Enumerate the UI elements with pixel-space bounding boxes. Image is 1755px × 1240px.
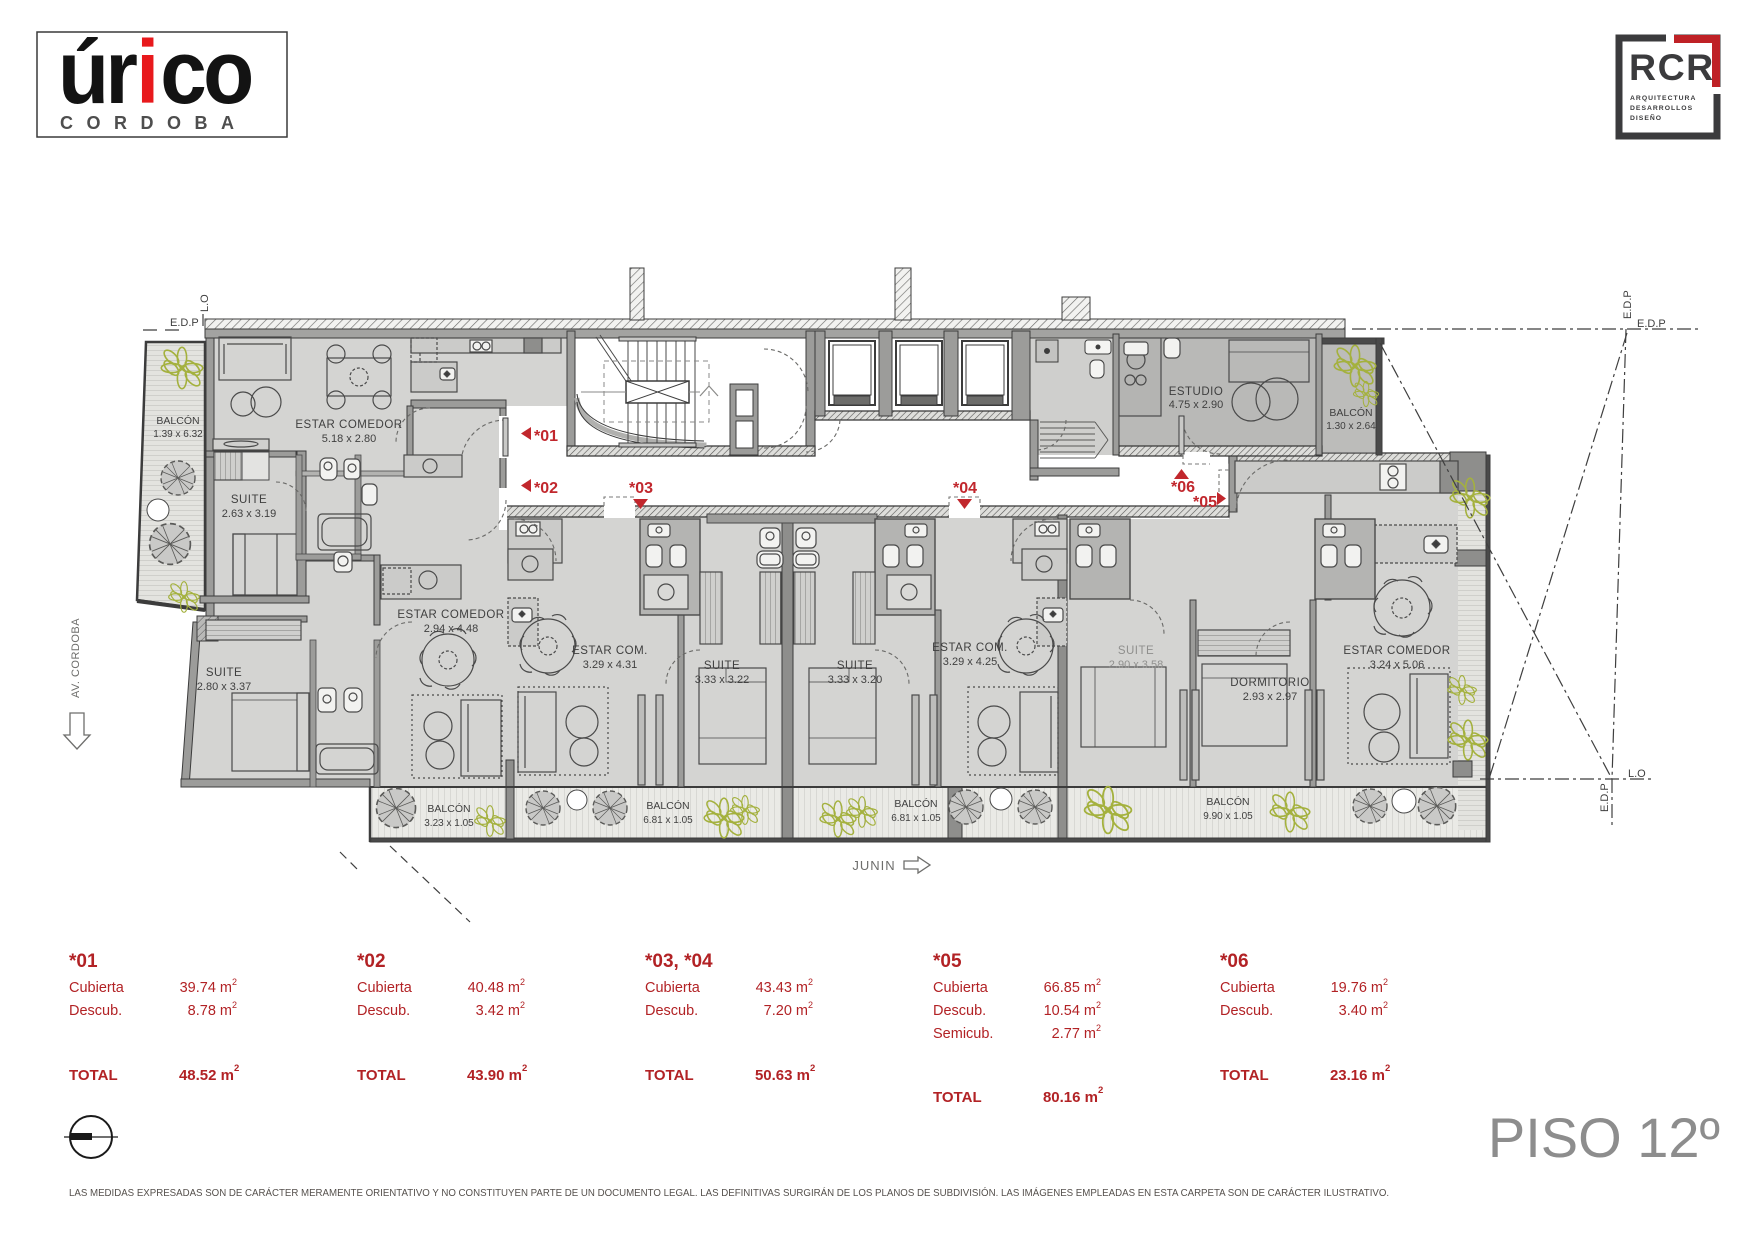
svg-text:2.93 x 2.97: 2.93 x 2.97 xyxy=(1243,691,1297,703)
svg-text:BALCÓN: BALCÓN xyxy=(894,797,937,810)
svg-text:Cubierta: Cubierta xyxy=(1220,980,1276,996)
svg-text:*05: *05 xyxy=(1193,494,1217,511)
svg-text:2.90 x 3.58: 2.90 x 3.58 xyxy=(1109,659,1163,671)
svg-text:TOTAL: TOTAL xyxy=(933,1089,982,1106)
svg-text:2: 2 xyxy=(1098,1085,1103,1096)
svg-text:2: 2 xyxy=(520,977,525,987)
svg-text:43.90 m: 43.90 m xyxy=(467,1067,522,1084)
svg-text:1.30 x 2.64: 1.30 x 2.64 xyxy=(1326,421,1376,432)
svg-text:DORMITORIO: DORMITORIO xyxy=(1230,677,1310,689)
svg-text:Descub.: Descub. xyxy=(1220,1003,1273,1019)
svg-text:8.78 m: 8.78 m xyxy=(188,1003,232,1019)
svg-text:2.77 m: 2.77 m xyxy=(1052,1026,1096,1042)
svg-text:JUNIN: JUNIN xyxy=(852,858,895,873)
svg-text:3.42 m: 3.42 m xyxy=(476,1003,520,1019)
svg-text:23.16 m: 23.16 m xyxy=(1330,1067,1385,1084)
svg-text:ESTAR COMEDOR: ESTAR COMEDOR xyxy=(397,609,504,621)
svg-text:6.81 x 1.05: 6.81 x 1.05 xyxy=(643,815,693,826)
svg-text:3.23 x 1.05: 3.23 x 1.05 xyxy=(424,818,474,829)
svg-text:*06: *06 xyxy=(1171,479,1195,496)
svg-text:*06: *06 xyxy=(1220,951,1249,972)
svg-text:2: 2 xyxy=(1383,1000,1388,1010)
svg-text:Cubierta: Cubierta xyxy=(933,980,989,996)
svg-text:2: 2 xyxy=(232,1000,237,1010)
svg-text:Cubierta: Cubierta xyxy=(69,980,125,996)
svg-text:*01: *01 xyxy=(69,951,98,972)
svg-text:5.18 x 2.80: 5.18 x 2.80 xyxy=(322,433,376,445)
svg-text:2: 2 xyxy=(1385,1063,1390,1074)
svg-text:1.39 x 6.32: 1.39 x 6.32 xyxy=(153,429,203,440)
svg-text:TOTAL: TOTAL xyxy=(69,1067,118,1084)
svg-text:SUITE: SUITE xyxy=(704,660,740,672)
svg-text:SUITE: SUITE xyxy=(231,494,267,506)
svg-text:43.43 m: 43.43 m xyxy=(756,980,808,996)
svg-text:i: i xyxy=(136,22,159,122)
svg-text:Descub.: Descub. xyxy=(69,1003,122,1019)
svg-text:E.D.P: E.D.P xyxy=(170,317,199,329)
svg-text:ESTAR COM.: ESTAR COM. xyxy=(932,642,1008,654)
svg-text:BALCÓN: BALCÓN xyxy=(646,799,689,812)
svg-text:TOTAL: TOTAL xyxy=(357,1067,406,1084)
svg-text:BALCÓN: BALCÓN xyxy=(1329,406,1372,419)
svg-text:ARQUITECTURA: ARQUITECTURA xyxy=(1630,95,1696,102)
svg-text:19.76 m: 19.76 m xyxy=(1331,980,1383,996)
svg-text:66.85 m: 66.85 m xyxy=(1044,980,1096,996)
svg-text:2: 2 xyxy=(1383,977,1388,987)
svg-text:9.90 x 1.05: 9.90 x 1.05 xyxy=(1203,811,1253,822)
svg-text:LAS MEDIDAS EXPRESADAS SON DE: LAS MEDIDAS EXPRESADAS SON DE CARÁCTER M… xyxy=(69,1188,1389,1199)
svg-text:BALCÓN: BALCÓN xyxy=(1206,795,1249,808)
svg-text:SUITE: SUITE xyxy=(837,660,873,672)
svg-text:E.D.P: E.D.P xyxy=(1637,318,1666,330)
svg-text:2: 2 xyxy=(808,977,813,987)
svg-text:L.O: L.O xyxy=(1628,768,1646,780)
svg-text:CORDOBA: CORDOBA xyxy=(60,113,248,133)
svg-text:39.74 m: 39.74 m xyxy=(180,980,232,996)
svg-text:DESARROLLOS: DESARROLLOS xyxy=(1630,105,1693,112)
svg-text:*03, *04: *03, *04 xyxy=(645,951,713,972)
svg-text:DISEÑO: DISEÑO xyxy=(1630,113,1662,122)
svg-text:TOTAL: TOTAL xyxy=(1220,1067,1269,1084)
svg-text:Cubierta: Cubierta xyxy=(357,980,413,996)
svg-text:2: 2 xyxy=(232,977,237,987)
svg-text:4.75 x 2.90: 4.75 x 2.90 xyxy=(1169,399,1223,411)
svg-text:Descub.: Descub. xyxy=(645,1003,698,1019)
svg-text:3.24 x 5.06: 3.24 x 5.06 xyxy=(1370,659,1424,671)
svg-text:2.80 x 3.37: 2.80 x 3.37 xyxy=(197,681,251,693)
svg-text:ESTAR COM.: ESTAR COM. xyxy=(572,645,648,657)
svg-text:L.O: L.O xyxy=(199,294,211,312)
svg-text:PISO 12º: PISO 12º xyxy=(1488,1106,1720,1169)
svg-text:*04: *04 xyxy=(953,480,977,497)
svg-text:AV. CORDOBA: AV. CORDOBA xyxy=(70,618,82,698)
svg-text:*05: *05 xyxy=(933,951,962,972)
svg-text:Cubierta: Cubierta xyxy=(645,980,701,996)
svg-text:SUITE: SUITE xyxy=(1118,645,1154,657)
svg-text:SUITE: SUITE xyxy=(206,667,242,679)
svg-text:2: 2 xyxy=(1096,977,1101,987)
svg-text:2: 2 xyxy=(1096,1023,1101,1033)
svg-text:TOTAL: TOTAL xyxy=(645,1067,694,1084)
svg-text:Semicub.: Semicub. xyxy=(933,1026,993,1042)
svg-text:2.63 x 3.19: 2.63 x 3.19 xyxy=(222,508,276,520)
svg-text:E.D.P: E.D.P xyxy=(1599,783,1611,812)
svg-text:40.48 m: 40.48 m xyxy=(468,980,520,996)
svg-text:úr: úr xyxy=(58,22,137,122)
svg-text:48.52 m: 48.52 m xyxy=(179,1067,234,1084)
svg-text:3.40 m: 3.40 m xyxy=(1339,1003,1383,1019)
svg-text:Descub.: Descub. xyxy=(933,1003,986,1019)
svg-text:ESTAR COMEDOR: ESTAR COMEDOR xyxy=(295,419,402,431)
svg-text:2: 2 xyxy=(1096,1000,1101,1010)
svg-text:3.29 x 4.31: 3.29 x 4.31 xyxy=(583,659,637,671)
svg-text:E.D.P: E.D.P xyxy=(1622,290,1634,319)
svg-text:10.54 m: 10.54 m xyxy=(1044,1003,1096,1019)
svg-text:2: 2 xyxy=(522,1063,527,1074)
svg-text:co: co xyxy=(160,22,251,122)
svg-text:3.29 x 4.25: 3.29 x 4.25 xyxy=(943,656,997,668)
svg-text:ESTUDIO: ESTUDIO xyxy=(1169,386,1224,398)
svg-text:2: 2 xyxy=(520,1000,525,1010)
svg-text:3.33 x 3.20: 3.33 x 3.20 xyxy=(828,674,882,686)
svg-text:ESTAR COMEDOR: ESTAR COMEDOR xyxy=(1343,645,1450,657)
svg-text:3.33 x 3.22: 3.33 x 3.22 xyxy=(695,674,749,686)
svg-text:*03: *03 xyxy=(629,480,653,497)
svg-text:2: 2 xyxy=(234,1063,239,1074)
svg-text:BALCÓN: BALCÓN xyxy=(427,802,470,815)
svg-text:2: 2 xyxy=(810,1063,815,1074)
svg-text:6.81 x 1.05: 6.81 x 1.05 xyxy=(891,813,941,824)
svg-text:BALCÓN: BALCÓN xyxy=(156,414,199,427)
svg-text:*01: *01 xyxy=(534,428,558,445)
svg-text:7.20 m: 7.20 m xyxy=(764,1003,808,1019)
svg-text:2: 2 xyxy=(808,1000,813,1010)
svg-text:RCR: RCR xyxy=(1629,46,1715,88)
svg-text:50.63 m: 50.63 m xyxy=(755,1067,810,1084)
svg-text:2.94 x 4.48: 2.94 x 4.48 xyxy=(424,623,478,635)
svg-text:*02: *02 xyxy=(357,951,386,972)
svg-text:*02: *02 xyxy=(534,480,558,497)
svg-text:80.16 m: 80.16 m xyxy=(1043,1089,1098,1106)
svg-text:Descub.: Descub. xyxy=(357,1003,410,1019)
